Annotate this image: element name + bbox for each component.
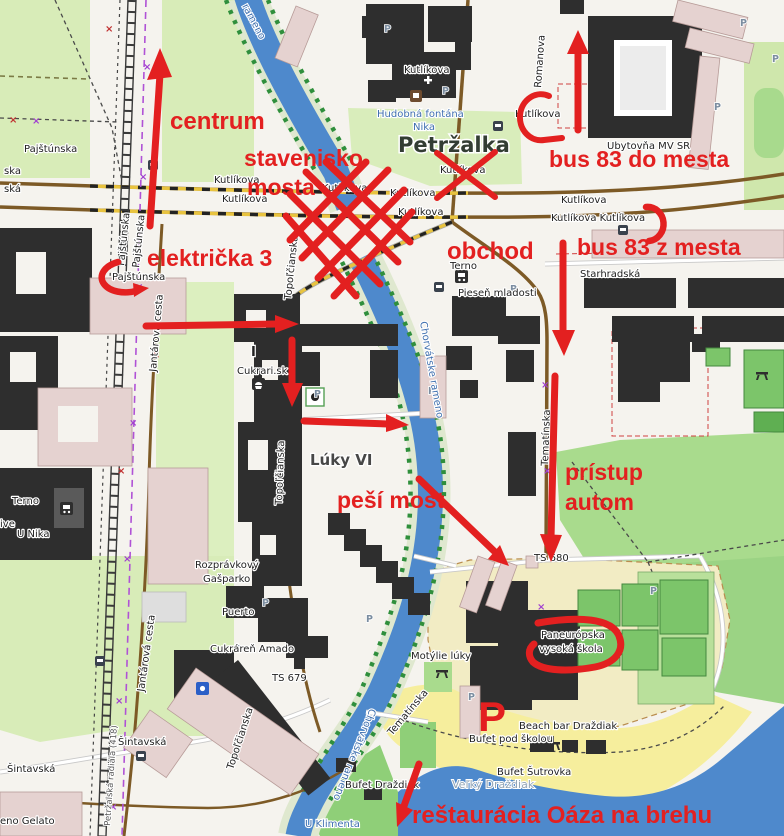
map-label: Šintavská (7, 762, 55, 775)
annotation-text-bus-z-mesta: bus 83 z mesta (577, 234, 741, 260)
map-label: Beach bar Draždiak (519, 720, 617, 732)
parking-p: P (384, 24, 391, 35)
svg-text:×: × (143, 62, 151, 73)
annotation-text-centrum: centrum (170, 108, 265, 135)
annotation-text-autom: autom (565, 489, 634, 515)
parking-p: P (468, 692, 475, 703)
map-label: ive (0, 519, 15, 530)
parking-p: P (366, 614, 373, 625)
annotation-text-elektricka: električka 3 (147, 245, 272, 271)
parking-p: P (772, 54, 779, 65)
map-label: Topoľčianska (273, 440, 287, 506)
map-canvas: ×××× ×××× ×××× ×××× P P P P P P P P P P … (0, 0, 784, 836)
map-label: Hudobná fontána (377, 108, 464, 120)
arrow-east-1 (146, 324, 276, 326)
map-label: Romanova (533, 35, 548, 89)
fountain-icon (196, 682, 209, 695)
map-label: TS 679 (271, 673, 307, 684)
svg-text:×: × (105, 24, 113, 35)
map-label: Pajštúnska (24, 143, 77, 155)
annotation-text-bus-do-mesta: bus 83 do mesta (549, 146, 729, 172)
map-label: Rozprávkový (195, 559, 259, 571)
parking-p: P (314, 389, 321, 400)
parking-p: P (442, 86, 449, 97)
map-label: Pajštúnska (115, 212, 133, 266)
svg-text:×: × (537, 602, 545, 613)
map-label: eno Gelato (0, 816, 55, 827)
map-label: Nika (413, 122, 435, 133)
lake-label: Veľký Draždiak (452, 778, 535, 791)
parking-p: P (650, 586, 657, 597)
svg-text:×: × (9, 115, 17, 126)
map-label: Bufet Šutrovka (497, 765, 571, 778)
map-label: Pajštúnska (130, 214, 148, 268)
parking-p: P (262, 598, 269, 609)
svg-text:×: × (117, 466, 125, 477)
arrow-centrum (150, 74, 160, 226)
map-label: Cukráreň Amado (210, 643, 294, 655)
map-label: Cukrari.sk (237, 366, 288, 377)
map-label: Paneurópska (541, 629, 605, 641)
map-label: Šintavská (118, 735, 166, 748)
svg-text:×: × (139, 172, 147, 183)
map-label: Kutlíkova (404, 64, 449, 76)
annotation-text-mosta: mosta (247, 174, 315, 200)
map-label: I (251, 345, 256, 360)
map-label: Gašparko (203, 573, 250, 585)
annotation-text-pristup: prístup (565, 459, 643, 485)
svg-text:×: × (129, 418, 137, 429)
annotation-text-parking: P (478, 693, 506, 740)
parking-p: P (714, 102, 721, 113)
suburb-label: Lúky VI (310, 451, 372, 469)
annotation-text-stavenisko: stavenisko (244, 145, 363, 171)
map-label: Pajštúnska (112, 271, 165, 283)
arrow-east-2 (304, 421, 388, 424)
map-label: U Klimenta (305, 819, 360, 830)
map-label: U Nika (17, 529, 50, 540)
annotation-text-restauracia: reštaurácia Oáza na brehu (412, 802, 712, 829)
map-label: Starhradská (580, 268, 640, 280)
svg-text:×: × (541, 380, 549, 391)
map-label: Motýlie lúky (411, 650, 471, 662)
svg-text:×: × (123, 554, 131, 565)
arrow-pristup-autom (551, 376, 555, 538)
map-label: ská (4, 183, 21, 195)
map-label: Kutlíkova Kutlíkova (551, 212, 645, 224)
map-label: Terno (11, 496, 39, 507)
svg-text:×: × (115, 696, 123, 707)
map-label: Kutlíkova (561, 194, 606, 206)
cupcake-icon (252, 378, 265, 390)
map-label: Puerto (222, 607, 255, 618)
map-label: vysoká škola (539, 643, 603, 655)
cafe-icon (410, 90, 422, 102)
map-label: Pieseň mladosti (458, 287, 537, 299)
annotation-text-obchod: obchod (447, 238, 534, 265)
map-label: ska (4, 166, 21, 177)
parking-p: P (740, 18, 747, 29)
svg-text:×: × (32, 116, 40, 127)
annotation-text-pesi-most: peší most (337, 487, 445, 513)
